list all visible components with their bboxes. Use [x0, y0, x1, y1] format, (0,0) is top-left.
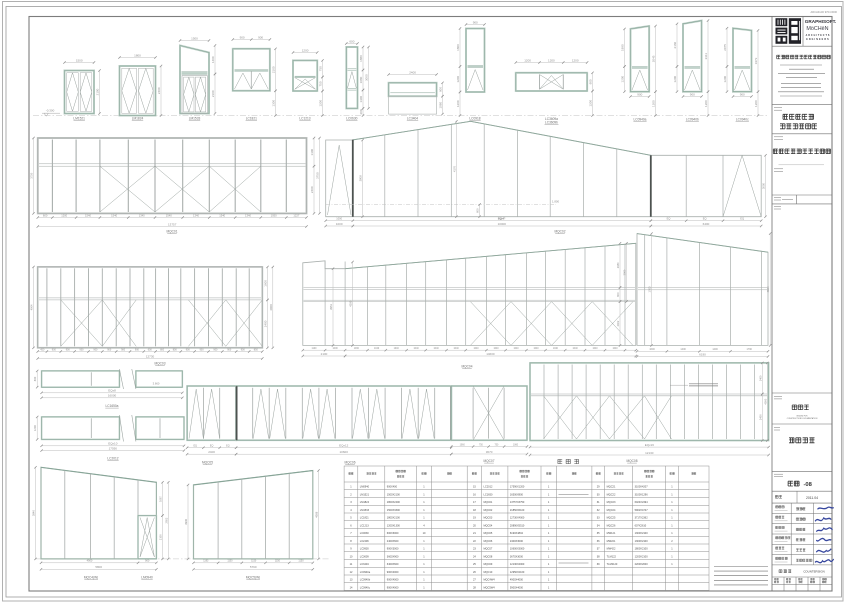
svg-text:2100: 2100 [321, 352, 328, 356]
svg-text:-0.300: -0.300 [46, 109, 55, 113]
svg-text:1040: 1040 [394, 348, 400, 350]
svg-text:MQC06: MQC06 [345, 461, 356, 465]
svg-text:TLM2120: TLM2120 [607, 562, 618, 566]
svg-text:10600X3000: 10600X3000 [510, 547, 525, 551]
svg-text:MQC10: MQC10 [484, 570, 493, 574]
svg-text:LC0630: LC0630 [360, 531, 370, 535]
svg-text:6190: 6190 [699, 352, 706, 356]
svg-text:14600: 14600 [486, 352, 495, 356]
svg-text:900X400: 900X400 [387, 485, 398, 489]
svg-text:1200: 1200 [704, 100, 708, 107]
svg-text:6024X2494: 6024X2494 [635, 500, 649, 504]
svg-text:1200: 1200 [33, 425, 37, 431]
svg-text:900: 900 [240, 35, 245, 39]
svg-text:1200: 1200 [572, 58, 579, 62]
svg-text:LC2406: LC2406 [360, 539, 370, 543]
svg-text:1000: 1000 [336, 217, 342, 221]
svg-text:3100X1296: 3100X1296 [635, 492, 649, 496]
svg-text:1540: 1540 [85, 213, 91, 217]
svg-text:EQx10: EQx10 [108, 442, 118, 446]
svg-text:900: 900 [186, 348, 191, 351]
svg-text:3.660: 3.660 [153, 382, 160, 386]
svg-text:1200: 1200 [456, 100, 460, 107]
svg-text:3940: 3940 [32, 510, 36, 516]
svg-text:1340: 1340 [193, 213, 199, 217]
svg-text:12730: 12730 [146, 354, 155, 358]
svg-text:900: 900 [135, 348, 140, 351]
svg-text:3808: 3808 [359, 175, 363, 182]
svg-text:4176: 4176 [452, 165, 456, 172]
svg-text:1540: 1540 [111, 213, 117, 217]
svg-text:1800X2400: 1800X2400 [387, 500, 401, 504]
svg-text:LC0940a: LC0940a [634, 118, 647, 122]
svg-text:MQC03: MQC03 [155, 362, 166, 366]
svg-text:900: 900 [213, 348, 218, 351]
svg-text:1500X2100: 1500X2100 [387, 492, 401, 496]
svg-text:EQ: EQ [210, 445, 214, 448]
svg-text:EQ: EQ [226, 445, 230, 448]
svg-text:5900X4000: 5900X4000 [510, 585, 524, 589]
svg-text:MQC4(W): MQC4(W) [84, 576, 98, 580]
svg-text:2160: 2160 [673, 41, 677, 48]
svg-text:ARCHITECTS: ARCHITECTS [806, 34, 831, 37]
svg-text:4804: 4804 [766, 286, 770, 292]
svg-text:MQC05: MQC05 [202, 461, 213, 465]
svg-text:LC3609b: LC3609b [545, 121, 558, 125]
svg-text:1800X2100: 1800X2100 [635, 547, 649, 551]
svg-text:2080: 2080 [616, 262, 620, 268]
svg-text:800: 800 [160, 348, 165, 351]
svg-text:2400: 2400 [758, 414, 762, 420]
svg-text:LC0630: LC0630 [346, 117, 357, 121]
svg-text:1227: 1227 [293, 213, 299, 217]
svg-text:EQx9: EQx9 [498, 217, 505, 221]
svg-text:LC3404: LC3404 [407, 117, 418, 121]
svg-text:1600: 1600 [649, 348, 655, 351]
svg-text:1080: 1080 [359, 76, 363, 83]
svg-text:1040: 1040 [533, 348, 539, 350]
svg-text:1200: 1200 [61, 213, 67, 217]
svg-text:GRAPHISOFT.: GRAPHISOFT. [805, 19, 837, 24]
svg-text:1400: 1400 [211, 56, 215, 63]
svg-text:1200: 1200 [589, 100, 593, 107]
svg-text:MQC01: MQC01 [167, 230, 178, 234]
svg-text:900: 900 [66, 348, 71, 351]
svg-text:MQC23: MQC23 [607, 500, 616, 504]
svg-text:2100: 2100 [96, 88, 100, 95]
svg-text:3400X600: 3400X600 [387, 562, 399, 566]
svg-text:750: 750 [319, 66, 323, 71]
svg-text:LC3609: LC3609 [360, 554, 370, 558]
svg-text:1040: 1040 [454, 348, 460, 350]
svg-text:200: 200 [359, 109, 363, 114]
svg-text:MQC5(W): MQC5(W) [246, 576, 260, 580]
svg-text:LM1824: LM1824 [132, 117, 144, 121]
svg-text:MW121: MW121 [607, 531, 616, 535]
svg-text:CONSTRUCTION DOCUMENTATION: CONSTRUCTION DOCUMENTATION [787, 417, 818, 420]
svg-text:1667: 1667 [159, 496, 163, 502]
svg-text:ARCHICAD 9704 0000: ARCHICAD 9704 0000 [810, 10, 837, 14]
svg-text:1300X2100: 1300X2100 [635, 531, 649, 535]
svg-text:12130: 12130 [645, 451, 654, 455]
svg-text:MQC4W4: MQC4W4 [484, 578, 496, 582]
svg-text:LM0940: LM0940 [141, 576, 153, 580]
svg-text:1000: 1000 [336, 222, 343, 226]
svg-text:2400: 2400 [310, 186, 314, 193]
svg-text:450: 450 [40, 348, 45, 351]
svg-text:1030: 1030 [354, 348, 360, 350]
svg-text:3000: 3000 [365, 74, 369, 81]
svg-text:3951: 3951 [329, 304, 333, 310]
svg-text:600: 600 [43, 213, 48, 217]
svg-text:1540: 1540 [166, 213, 172, 217]
svg-text:1790: 1790 [747, 348, 753, 351]
svg-text:1880: 1880 [359, 55, 363, 62]
svg-text:2075: 2075 [723, 44, 727, 51]
svg-text:1040: 1040 [493, 348, 499, 350]
svg-text:900: 900 [80, 348, 85, 351]
svg-text:1500X3300: 1500X3300 [387, 508, 401, 512]
svg-text:1340: 1340 [139, 213, 145, 217]
svg-text:MQC5W4: MQC5W4 [484, 585, 496, 589]
svg-text:1040: 1040 [573, 348, 579, 350]
svg-text:2045: 2045 [652, 55, 656, 62]
svg-text:1890: 1890 [621, 44, 625, 51]
svg-text:1200: 1200 [673, 75, 677, 82]
svg-text:LC0940c: LC0940c [360, 585, 371, 589]
svg-text:1540: 1540 [219, 213, 225, 217]
svg-text:1200: 1200 [548, 58, 555, 62]
svg-text:1600: 1600 [264, 280, 268, 287]
svg-text:600X3000: 600X3000 [387, 531, 399, 535]
svg-text:MQC03: MQC03 [484, 516, 493, 520]
svg-text:10600: 10600 [340, 450, 349, 454]
svg-text:1040: 1040 [434, 348, 440, 350]
svg-text:3717X2362: 3717X2362 [635, 516, 649, 520]
svg-text:MQC07: MQC07 [484, 547, 493, 551]
svg-text:6190X4804: 6190X4804 [510, 531, 524, 535]
svg-text:900X4000: 900X4000 [387, 585, 399, 589]
svg-text:1300: 1300 [359, 96, 363, 103]
svg-text:EQ: EQ [193, 445, 197, 448]
svg-text:3060: 3060 [623, 269, 627, 275]
svg-text:600: 600 [476, 208, 480, 213]
svg-text:LM0940: LM0940 [360, 485, 370, 489]
svg-text:1300: 1300 [310, 148, 314, 155]
svg-text:LC0940a: LC0940a [360, 570, 371, 574]
svg-text:LC0940b: LC0940b [686, 118, 699, 122]
svg-text:1040: 1040 [414, 348, 420, 350]
svg-text:LM1824: LM1824 [360, 500, 370, 504]
svg-text:MQC04: MQC04 [462, 365, 473, 369]
svg-text:850: 850 [254, 348, 259, 351]
svg-text:MQC22: MQC22 [607, 492, 616, 496]
svg-text:2400: 2400 [264, 320, 268, 327]
svg-text:3750: 3750 [316, 172, 320, 179]
svg-text:LC3404: LC3404 [360, 562, 370, 566]
svg-text:13757X3750: 13757X3750 [510, 500, 525, 504]
svg-text:MQC25: MQC25 [607, 516, 616, 520]
svg-text:2311: 2311 [704, 53, 708, 60]
svg-text:ENGINEERS: ENGINEERS [806, 39, 829, 41]
svg-text:1100: 1100 [312, 348, 318, 350]
svg-text:17590: 17590 [109, 446, 118, 450]
svg-text:MQC08: MQC08 [627, 459, 638, 463]
svg-text:2400X3000: 2400X3000 [510, 539, 524, 543]
svg-text:2400X600: 2400X600 [387, 539, 399, 543]
svg-text:2400: 2400 [409, 70, 416, 74]
svg-text:3750: 3750 [30, 172, 34, 178]
svg-text:900: 900 [637, 92, 642, 96]
svg-text:1340: 1340 [245, 213, 251, 217]
svg-text:900: 900 [241, 348, 246, 351]
svg-text:1150: 1150 [298, 560, 304, 563]
svg-text:2100: 2100 [272, 66, 276, 73]
svg-text:1400: 1400 [680, 348, 686, 351]
svg-text:750: 750 [319, 81, 323, 86]
svg-text:1500: 1500 [191, 36, 198, 40]
svg-text:ISSUED FOR: ISSUED FOR [797, 415, 809, 417]
svg-text:1700: 1700 [648, 286, 652, 292]
svg-text:900: 900 [107, 348, 112, 351]
svg-text:1973: 1973 [754, 57, 758, 64]
svg-text:LC1650a: LC1650a [106, 404, 119, 408]
svg-text:LC1650: LC1650 [484, 492, 494, 496]
svg-text:600: 600 [148, 348, 153, 351]
svg-text:12130X4000: 12130X4000 [510, 562, 525, 566]
svg-text:1150: 1150 [227, 560, 233, 563]
svg-text:MQC02: MQC02 [555, 230, 566, 234]
svg-text:5902X4747: 5902X4747 [635, 508, 649, 512]
svg-text:LC0930: LC0930 [360, 547, 370, 551]
svg-text:3000: 3000 [762, 182, 766, 189]
svg-text:LC2012: LC2012 [107, 457, 118, 461]
svg-text:4088: 4088 [315, 511, 319, 517]
svg-text:EQx12: EQx12 [339, 444, 349, 448]
svg-text:2100: 2100 [159, 534, 163, 540]
svg-text:EQ: EQ [703, 217, 707, 221]
svg-text:3600X900: 3600X900 [387, 554, 399, 558]
svg-text:1200: 1200 [621, 75, 625, 82]
svg-text:TLM122: TLM122 [607, 554, 617, 558]
svg-text:MQC26: MQC26 [607, 523, 616, 527]
svg-text:2011.04: 2011.04 [806, 496, 818, 500]
svg-text:LC1821: LC1821 [360, 516, 370, 520]
svg-text:4900: 4900 [87, 559, 93, 563]
svg-text:MQC24: MQC24 [607, 508, 616, 512]
svg-text:1800: 1800 [456, 44, 460, 51]
svg-text:900: 900 [258, 35, 263, 39]
svg-text:900: 900 [145, 559, 150, 563]
svg-text:1060: 1060 [460, 444, 466, 446]
svg-text:MQC02: MQC02 [484, 508, 493, 512]
svg-text:2400: 2400 [208, 450, 215, 454]
svg-text:MQC09: MQC09 [484, 562, 493, 566]
svg-text:1200: 1200 [524, 58, 531, 62]
svg-text:1200: 1200 [652, 100, 656, 107]
svg-text:MQC21: MQC21 [607, 485, 616, 489]
svg-text:MöCHēN: MöCHēN [806, 26, 828, 32]
svg-text:LM1521: LM1521 [73, 117, 85, 121]
svg-text:LC1213: LC1213 [299, 117, 310, 121]
svg-text:1040: 1040 [592, 348, 598, 350]
svg-text:1200: 1200 [456, 76, 460, 83]
svg-text:1050: 1050 [271, 213, 277, 217]
svg-text:1300: 1300 [272, 100, 276, 107]
svg-text:1040: 1040 [473, 348, 479, 350]
svg-text:4000: 4000 [763, 398, 767, 404]
svg-text:MQC05: MQC05 [484, 531, 493, 535]
svg-text:MQC04: MQC04 [484, 523, 493, 527]
svg-text:800: 800 [173, 348, 178, 351]
svg-text:2952: 2952 [164, 517, 168, 523]
svg-text:MQC06: MQC06 [484, 539, 493, 543]
svg-text:COUNTERSIGN: COUNTERSIGN [803, 570, 824, 574]
svg-text:900: 900 [740, 92, 745, 96]
svg-text:4004: 4004 [30, 304, 34, 310]
svg-text:10000: 10000 [498, 222, 507, 226]
svg-text:1040: 1040 [374, 348, 380, 350]
svg-text:12730X4000: 12730X4000 [510, 516, 525, 520]
svg-text:21850X6100: 21850X6100 [510, 508, 525, 512]
svg-text:900X3000: 900X3000 [387, 547, 399, 551]
svg-text:1400: 1400 [758, 375, 762, 381]
svg-text:LM1533: LM1533 [360, 508, 370, 512]
svg-text:MQC01: MQC01 [484, 500, 493, 504]
svg-text:900X4000: 900X4000 [387, 570, 399, 574]
svg-text:600: 600 [349, 39, 354, 43]
svg-text:2100: 2100 [211, 90, 215, 97]
svg-text:1150: 1150 [251, 560, 257, 563]
svg-text:-08: -08 [804, 482, 813, 488]
svg-text:1000: 1000 [333, 348, 339, 350]
svg-text:1060: 1060 [513, 444, 519, 446]
svg-text:MW422: MW422 [607, 547, 616, 551]
svg-text:1200: 1200 [754, 100, 758, 107]
svg-text:900: 900 [690, 92, 695, 96]
svg-text:1400: 1400 [712, 348, 718, 351]
svg-text:MQC08: MQC08 [484, 554, 493, 558]
svg-text:1150: 1150 [275, 560, 281, 563]
svg-text:900X4000: 900X4000 [387, 578, 399, 582]
svg-text:EQ: EQ [667, 217, 671, 221]
svg-text:LC1821: LC1821 [246, 117, 257, 121]
svg-text:LM1521: LM1521 [360, 492, 370, 496]
svg-text:LC1213: LC1213 [360, 523, 370, 527]
svg-text:5790: 5790 [250, 565, 257, 569]
svg-text:LC2012: LC2012 [484, 485, 494, 489]
svg-text:3670X3000: 3670X3000 [510, 554, 524, 558]
svg-text:2402: 2402 [616, 320, 620, 326]
svg-text:LC0918: LC0918 [469, 117, 480, 121]
svg-text:600: 600 [439, 87, 443, 92]
svg-text:1200: 1200 [302, 48, 309, 52]
svg-text:1080: 1080 [439, 102, 443, 109]
svg-text:900: 900 [52, 348, 57, 351]
svg-text:20890X5510: 20890X5510 [510, 523, 525, 527]
svg-text:1200: 1200 [723, 75, 727, 82]
svg-text:17590X1200: 17590X1200 [510, 485, 525, 489]
svg-text:1200X2100: 1200X2100 [635, 554, 649, 558]
svg-text:5800: 5800 [95, 565, 102, 569]
svg-text:4900X4000: 4900X4000 [510, 578, 524, 582]
svg-text:1040: 1040 [513, 348, 519, 350]
svg-text:MQC07: MQC07 [484, 459, 495, 463]
svg-text:600: 600 [616, 292, 620, 297]
svg-text:MW221: MW221 [607, 539, 616, 543]
svg-text:1800: 1800 [134, 53, 141, 57]
svg-text:EQx16: EQx16 [645, 443, 655, 447]
svg-text:900: 900 [93, 348, 98, 351]
svg-text:4200: 4200 [349, 300, 353, 306]
svg-text:1200X1300: 1200X1300 [387, 523, 401, 527]
svg-text:1200: 1200 [319, 100, 323, 107]
svg-text:3900: 3900 [184, 518, 188, 524]
svg-text:900: 900 [473, 20, 478, 24]
svg-text:2200X2000: 2200X2000 [635, 562, 649, 566]
svg-text:800: 800 [33, 376, 37, 381]
svg-text:1500: 1500 [76, 58, 83, 62]
svg-text:EQ: EQ [740, 217, 744, 221]
svg-text:1040: 1040 [553, 348, 559, 350]
svg-text:900: 900 [121, 348, 126, 351]
svg-text:EQx8: EQx8 [108, 389, 116, 393]
svg-text:LC0940c: LC0940c [736, 118, 749, 122]
svg-text:3100X4207: 3100X4207 [635, 485, 649, 489]
svg-text:16000: 16000 [108, 394, 117, 398]
svg-text:1040: 1040 [612, 348, 618, 350]
svg-text:2400: 2400 [157, 87, 161, 94]
svg-text:LC0940b: LC0940b [360, 578, 371, 582]
svg-text:900: 900 [200, 348, 205, 351]
svg-text:3670: 3670 [486, 450, 493, 454]
svg-text:1300X2100: 1300X2100 [635, 539, 649, 543]
svg-text:1.800: 1.800 [552, 200, 559, 204]
svg-text:LM1533: LM1533 [189, 117, 201, 121]
svg-text:6400: 6400 [703, 222, 710, 226]
svg-text:13757: 13757 [168, 222, 177, 226]
svg-text:1800X2100: 1800X2100 [387, 516, 401, 520]
svg-text:900: 900 [589, 79, 593, 84]
svg-text:4000: 4000 [269, 304, 273, 311]
svg-text:900: 900 [227, 348, 232, 351]
svg-text:1193: 1193 [203, 560, 209, 563]
svg-text:12950X2160: 12950X2160 [510, 570, 525, 574]
svg-text:16500X800: 16500X800 [510, 492, 524, 496]
svg-text:607X2610: 607X2610 [635, 523, 647, 527]
